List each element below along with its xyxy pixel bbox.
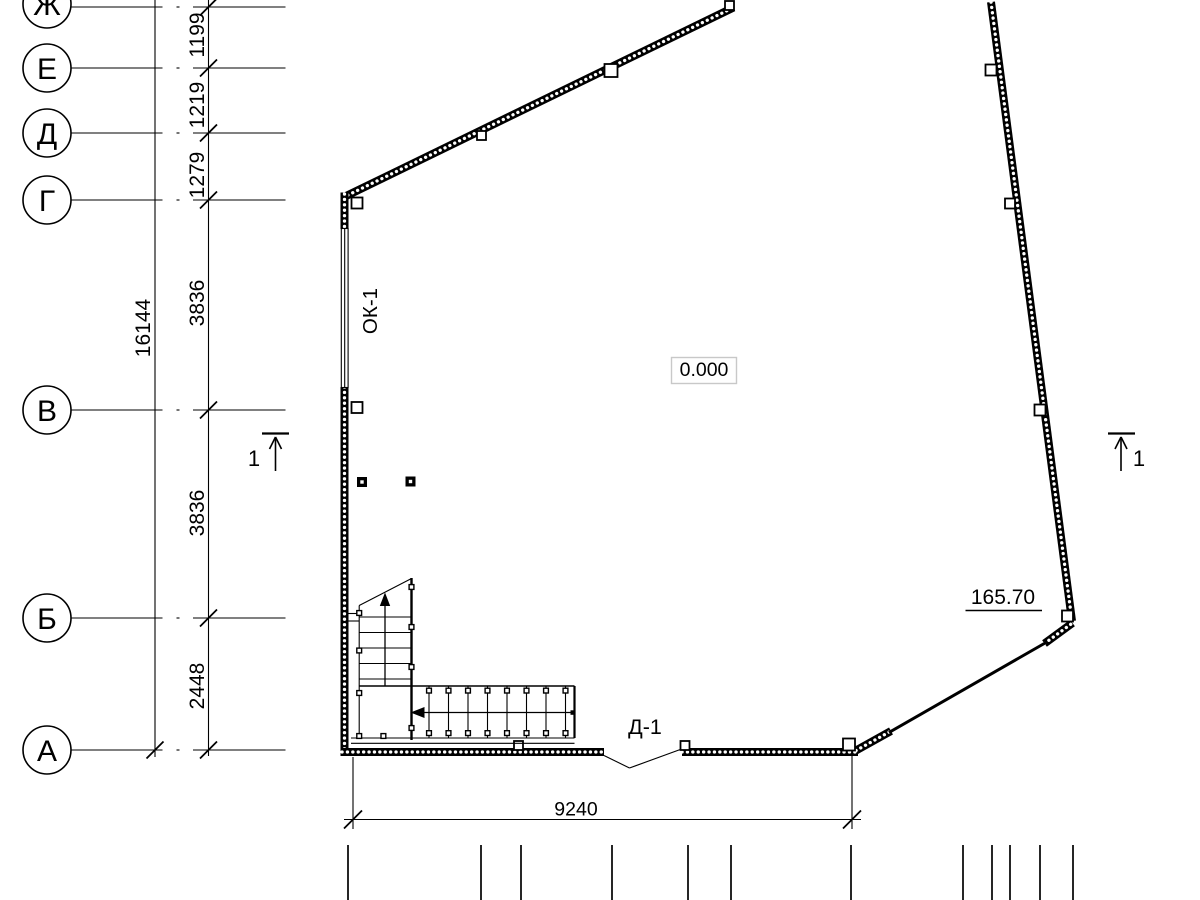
- dim-3836-lower: 3836: [186, 490, 209, 537]
- axis-label-g: Г: [39, 185, 55, 218]
- stair-walkline-end: [571, 710, 576, 715]
- bottom-dimension: 9240: [344, 756, 861, 829]
- axis-row-v: В: [23, 386, 286, 434]
- floor-elevation-label: 0.000: [672, 358, 737, 384]
- axis-row-b: Б: [23, 594, 286, 642]
- axis-row-zh: Ж: [23, 0, 286, 28]
- section-mark-left: 1: [248, 434, 289, 472]
- axis-grid: Ж Е Д Г В: [23, 0, 286, 774]
- corner-elevation-label: 165.70: [966, 586, 1043, 611]
- dim-3836-upper: 3836: [186, 280, 209, 327]
- bottom-tick-lines: [348, 845, 1073, 900]
- wall-se-thin-line: [889, 643, 1046, 733]
- corner-elevation-value: 165.70: [971, 586, 1035, 609]
- window-ok1: ОК-1: [341, 229, 382, 388]
- axis-label-a: А: [37, 735, 57, 768]
- axis-row-a: А: [23, 726, 286, 774]
- axis-label-d: Д: [37, 118, 57, 151]
- axis-label-e: Е: [37, 53, 57, 86]
- section-number-left: 1: [248, 446, 260, 471]
- dim-1279: 1279: [186, 152, 209, 199]
- plan-svg: Ж Е Д Г В: [0, 0, 1200, 900]
- dim-total-16144: 16144: [132, 298, 155, 357]
- stairs: [349, 578, 576, 743]
- window-mark-label: ОК-1: [359, 288, 382, 334]
- door-d1: Д-1: [604, 715, 683, 768]
- door-leaf-line: [630, 749, 684, 769]
- axis-label-b: Б: [37, 603, 57, 636]
- interior-columns: [357, 477, 416, 488]
- dim-1199: 1199: [186, 12, 209, 57]
- axis-row-d: Д: [23, 109, 286, 157]
- dim-9240: 9240: [554, 799, 598, 821]
- left-dimension-texts: 1199 1219 1279 3836 3836 2448 16144: [132, 12, 209, 709]
- section-mark-right: 1: [1108, 434, 1145, 472]
- floor-elevation-value: 0.000: [680, 359, 729, 381]
- door-mark-label: Д-1: [628, 715, 662, 739]
- axis-label-zh: Ж: [33, 0, 61, 22]
- dim-2448: 2448: [186, 663, 209, 710]
- stair-post-squares: [357, 585, 568, 739]
- section-number-right: 1: [1133, 446, 1145, 471]
- axis-row-e: Е: [23, 44, 286, 92]
- dim-1219: 1219: [186, 82, 209, 129]
- door-leaf-line: [604, 756, 630, 769]
- axis-label-v: В: [37, 395, 57, 428]
- floor-plan-drawing: Ж Е Д Г В: [0, 0, 1200, 900]
- axis-row-g: Г: [23, 176, 286, 224]
